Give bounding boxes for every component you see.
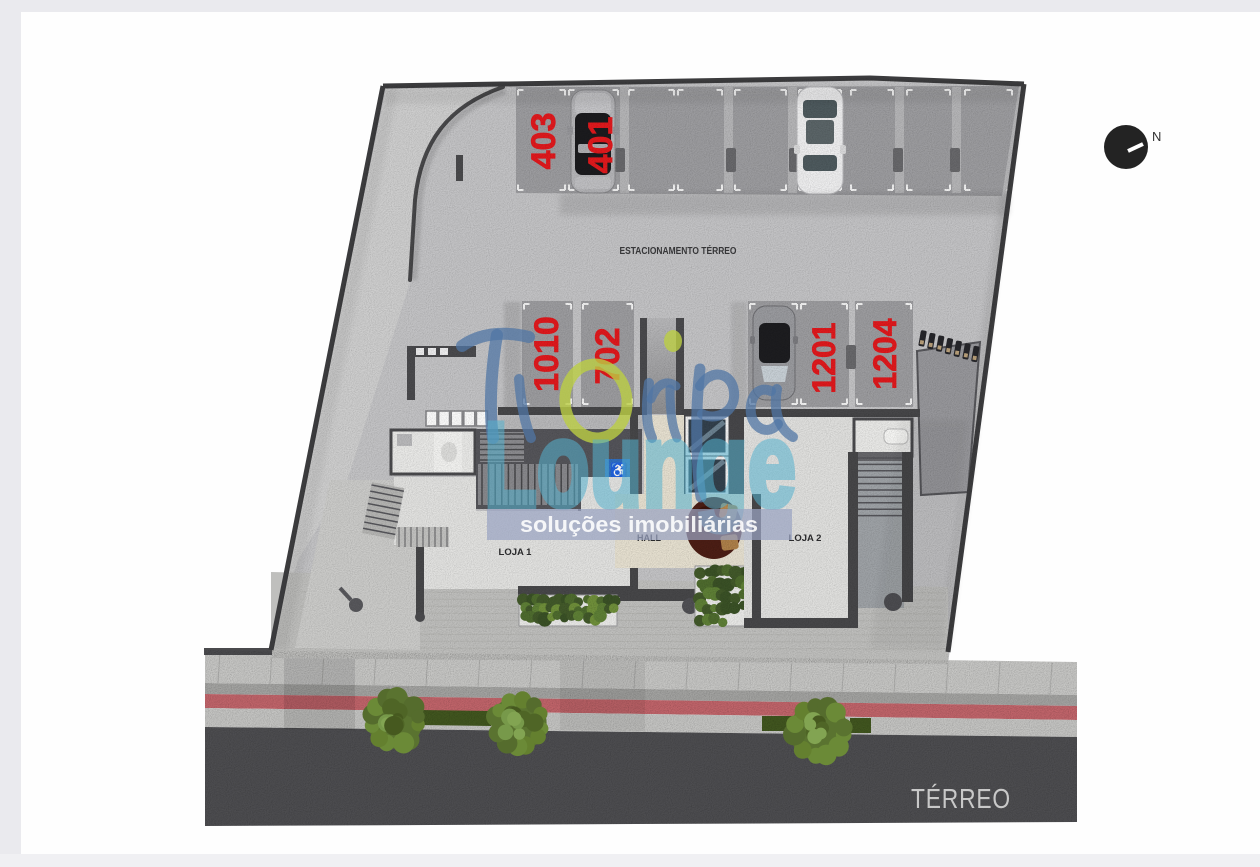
svg-text:TÉRREO: TÉRREO <box>911 783 1011 814</box>
svg-text:N: N <box>1152 129 1161 144</box>
svg-text:soluções imobiliárias: soluções imobiliárias <box>520 512 758 537</box>
